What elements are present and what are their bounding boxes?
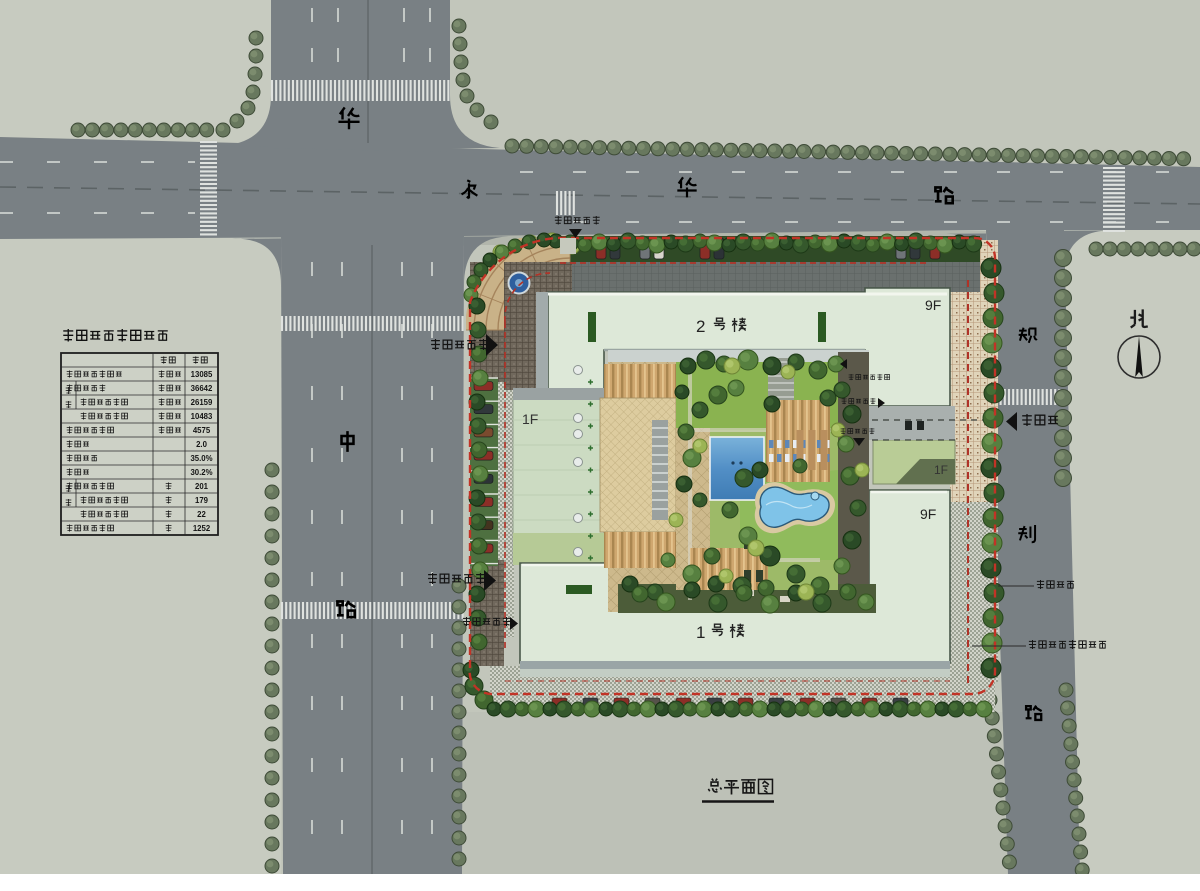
svg-text:4575: 4575 xyxy=(193,426,211,435)
svg-text:1F: 1F xyxy=(934,463,948,477)
svg-text:35.0%: 35.0% xyxy=(190,454,212,463)
svg-text:13085: 13085 xyxy=(191,370,213,379)
svg-text:1252: 1252 xyxy=(193,524,211,533)
svg-text:1: 1 xyxy=(696,623,705,642)
svg-text:9F: 9F xyxy=(920,506,936,522)
svg-text:2.0: 2.0 xyxy=(196,440,208,449)
svg-text:1F: 1F xyxy=(522,411,538,427)
svg-text:22: 22 xyxy=(197,510,206,519)
svg-text:26159: 26159 xyxy=(191,398,213,407)
svg-text:36642: 36642 xyxy=(191,384,213,393)
svg-text:9F: 9F xyxy=(925,297,941,313)
svg-text:10483: 10483 xyxy=(191,412,213,421)
svg-text:201: 201 xyxy=(195,482,209,491)
svg-text:30.2%: 30.2% xyxy=(190,468,212,477)
svg-text:179: 179 xyxy=(195,496,209,505)
svg-text:2: 2 xyxy=(696,317,705,336)
